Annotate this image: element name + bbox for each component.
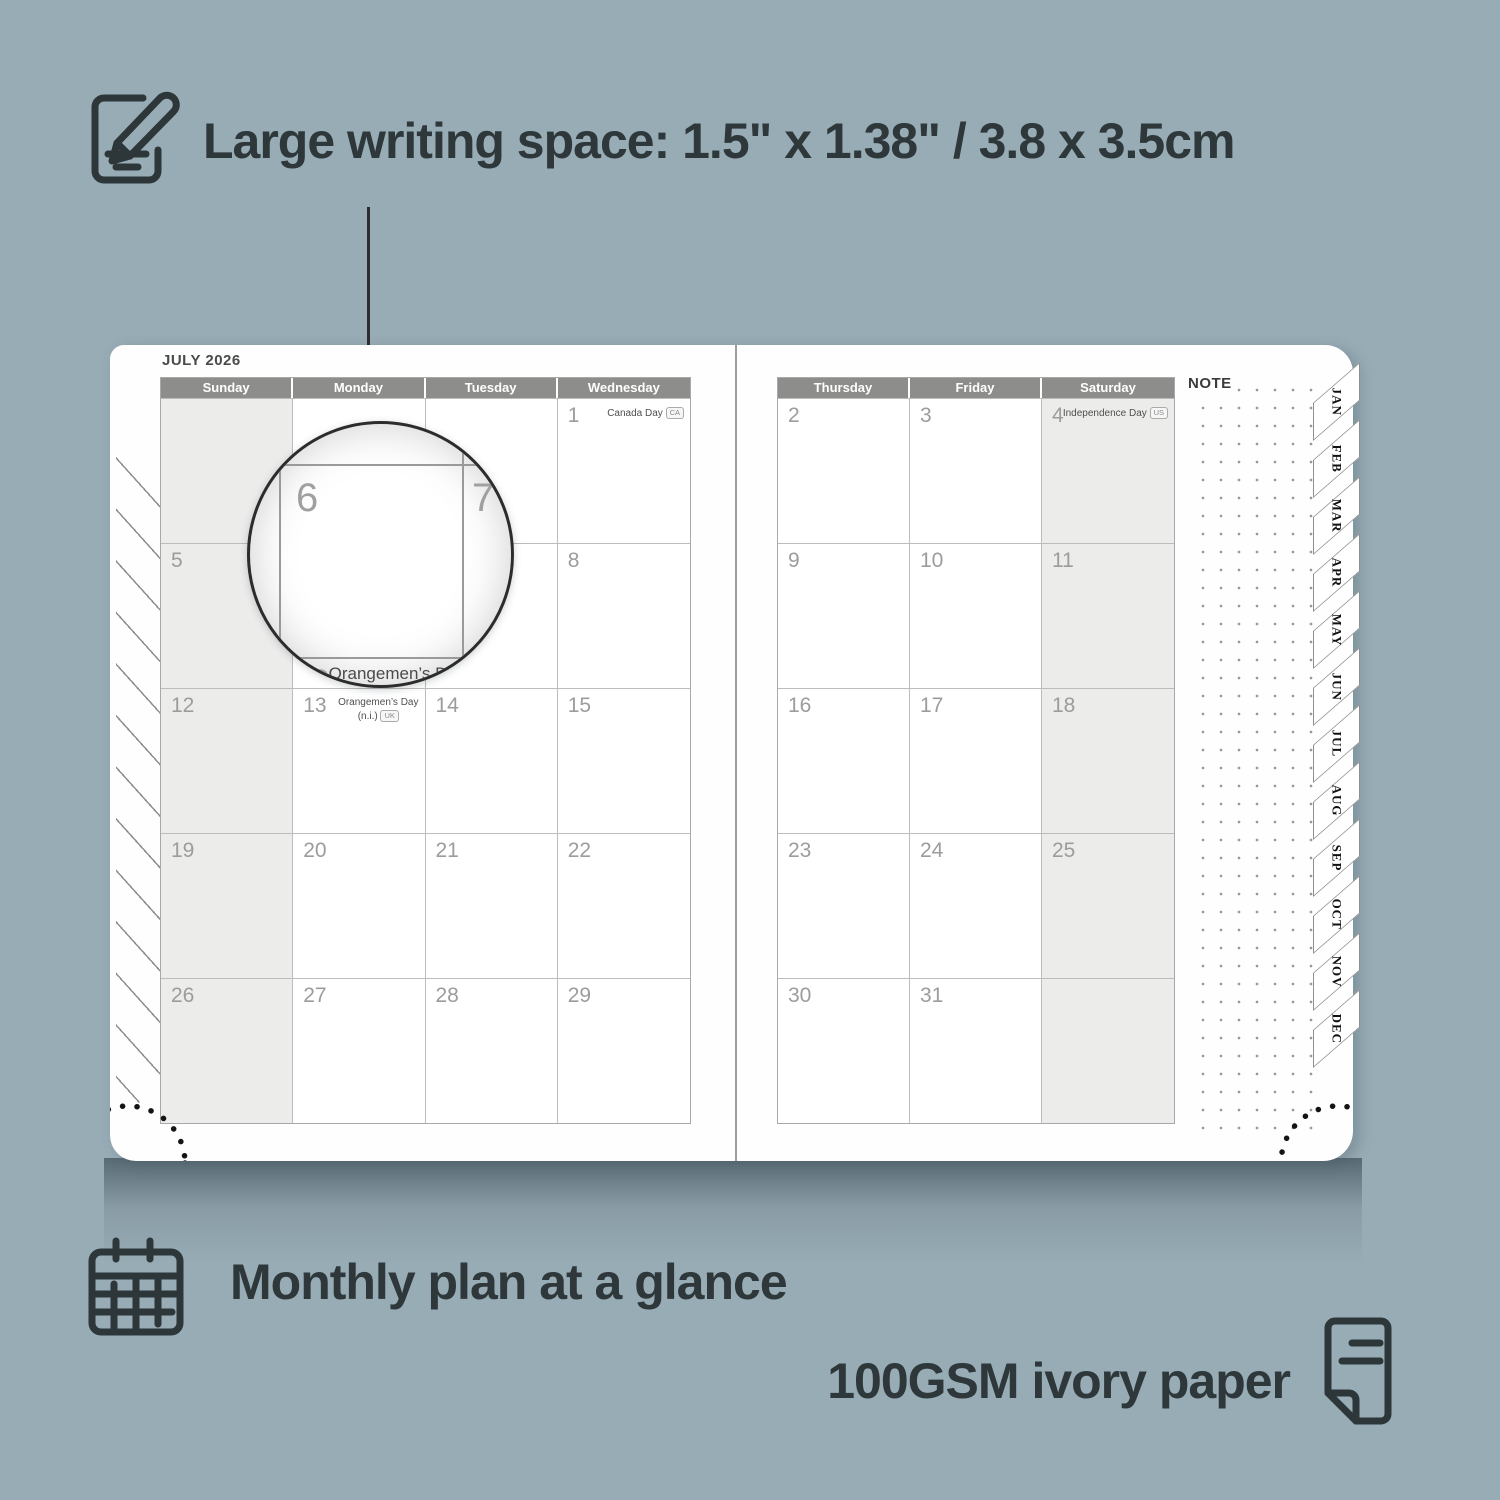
tab-label: NOV xyxy=(1314,954,1359,990)
holiday-name: Canada Day xyxy=(607,408,663,419)
calendar-right-page: Thursday Friday Saturday 2 3 4 Independe… xyxy=(777,377,1175,1124)
tab-label: MAY xyxy=(1314,612,1359,648)
day-cell: 22 xyxy=(558,833,690,978)
note-label: NOTE xyxy=(1188,375,1237,392)
day-cell: 16 xyxy=(778,688,910,833)
page-edge-hatching xyxy=(116,425,163,1127)
day-number: 13 xyxy=(303,694,326,718)
day-number: 20 xyxy=(303,839,326,863)
day-cell: 17 xyxy=(910,688,1042,833)
country-badge: CA xyxy=(666,407,684,419)
country-badge: US xyxy=(1150,407,1168,419)
tab-label: DEC xyxy=(1314,1011,1359,1047)
magnifier-circle: 6 7 13 Orangemen’s Day (n.i.) UK xyxy=(247,421,514,688)
weekday-header: Saturday xyxy=(1042,378,1174,398)
day-number: 25 xyxy=(1052,839,1075,863)
holiday-name: Independence Day xyxy=(1063,408,1147,419)
day-number: 22 xyxy=(568,839,591,863)
day-cell: 19 xyxy=(161,833,293,978)
day-cell: 28 xyxy=(426,978,558,1123)
day-number: 14 xyxy=(436,694,459,718)
day-number: 11 xyxy=(1052,549,1074,573)
weekday-header: Tuesday xyxy=(426,378,558,398)
day-number: 15 xyxy=(568,694,591,718)
day-number: 8 xyxy=(568,549,580,573)
tab-label: JUL xyxy=(1314,726,1359,762)
day-cell: 27 xyxy=(293,978,425,1123)
day-number: 18 xyxy=(1052,694,1075,718)
paper-label: 100GSM ivory paper xyxy=(600,1352,1290,1410)
month-tab-strip: JAN FEB MAR APR MAY JUN JUL AUG SEP OCT … xyxy=(1313,403,1363,1143)
day-cell: 18 xyxy=(1042,688,1174,833)
month-title: JULY 2026 xyxy=(162,352,241,369)
day-cell: 21 xyxy=(426,833,558,978)
day-cell: 24 xyxy=(910,833,1042,978)
day-cell: 2 xyxy=(778,398,910,543)
day-number: 23 xyxy=(788,839,811,863)
magnified-day-7: 7 xyxy=(472,476,494,521)
weekday-header: Friday xyxy=(910,378,1042,398)
tab-label: JAN xyxy=(1314,384,1359,420)
day-number: 5 xyxy=(171,549,183,573)
holiday-label: Orangemen’s Day(n.i.) UK xyxy=(338,697,418,722)
day-number: 9 xyxy=(788,549,800,573)
holiday-label: Independence Day US xyxy=(1063,407,1168,419)
holiday-label: Canada Day CA xyxy=(607,407,684,419)
tab-label: FEB xyxy=(1314,441,1359,477)
weekday-header: Thursday xyxy=(778,378,910,398)
day-number: 10 xyxy=(920,549,943,573)
writing-space-label: Large writing space: 1.5" x 1.38" / 3.8 … xyxy=(203,112,1235,170)
tab-label: APR xyxy=(1314,555,1359,591)
weekday-header: Wednesday xyxy=(558,378,690,398)
day-number: 31 xyxy=(920,984,943,1008)
calendar-grid-icon xyxy=(84,1236,188,1338)
monthly-plan-label: Monthly plan at a glance xyxy=(230,1253,787,1311)
day-number: 21 xyxy=(436,839,459,863)
holiday-name: Orangemen’s Day xyxy=(329,664,466,683)
grid-line xyxy=(250,464,511,466)
day-cell: 26 xyxy=(161,978,293,1123)
day-cell: 15 xyxy=(558,688,690,833)
day-cell: 25 xyxy=(1042,833,1174,978)
weekday-header: Monday xyxy=(293,378,425,398)
notepad-pencil-icon xyxy=(86,80,186,188)
holiday-detail: (n.i.) xyxy=(358,711,378,722)
day-cell xyxy=(1042,978,1174,1123)
tab-label: SEP xyxy=(1314,840,1359,876)
note-dot-grid xyxy=(1188,375,1322,1141)
day-cell: 29 xyxy=(558,978,690,1123)
day-number: 16 xyxy=(788,694,811,718)
day-cell: 23 xyxy=(778,833,910,978)
day-cell: 14 xyxy=(426,688,558,833)
day-cell: 8 xyxy=(558,543,690,688)
day-number: 3 xyxy=(920,404,932,428)
day-number: 27 xyxy=(303,984,326,1008)
paper-sheet-icon xyxy=(1318,1315,1394,1433)
day-cell: 10 xyxy=(910,543,1042,688)
day-cell: 30 xyxy=(778,978,910,1123)
day-cell: 12 xyxy=(161,688,293,833)
country-badge: UK xyxy=(380,710,398,722)
day-cell-july-13: 13 Orangemen’s Day(n.i.) UK xyxy=(293,688,425,833)
weekday-header: Sunday xyxy=(161,378,293,398)
day-number: 30 xyxy=(788,984,811,1008)
day-cell-july-4: 4 Independence Day US xyxy=(1042,398,1174,543)
grid-line xyxy=(462,424,464,658)
day-number: 26 xyxy=(171,984,194,1008)
book-spine xyxy=(735,345,737,1161)
day-number: 17 xyxy=(920,694,943,718)
day-number: 2 xyxy=(788,404,800,428)
day-number: 24 xyxy=(920,839,943,863)
tab-label: AUG xyxy=(1314,783,1359,819)
grid-line xyxy=(279,464,281,658)
day-number: 1 xyxy=(568,404,580,428)
product-image: Large writing space: 1.5" x 1.38" / 3.8 … xyxy=(0,0,1500,1500)
day-cell: 31 xyxy=(910,978,1042,1123)
day-number: 19 xyxy=(171,839,194,863)
holiday-name: Orangemen’s Day xyxy=(338,697,418,708)
magnified-day-6: 6 xyxy=(296,476,318,521)
day-cell: 11 xyxy=(1042,543,1174,688)
day-cell: 9 xyxy=(778,543,910,688)
day-number: 29 xyxy=(568,984,591,1008)
tab-label: OCT xyxy=(1314,897,1359,933)
grid-line xyxy=(250,657,511,659)
day-cell-july-1: 1 Canada Day CA xyxy=(558,398,690,543)
magnified-holiday: Orangemen’s Day (n.i.) UK xyxy=(312,664,482,688)
day-number: 12 xyxy=(171,694,194,718)
tab-label: JUN xyxy=(1314,669,1359,705)
day-cell: 3 xyxy=(910,398,1042,543)
day-number: 28 xyxy=(436,984,459,1008)
tab-label: MAR xyxy=(1314,498,1359,534)
day-cell: 20 xyxy=(293,833,425,978)
